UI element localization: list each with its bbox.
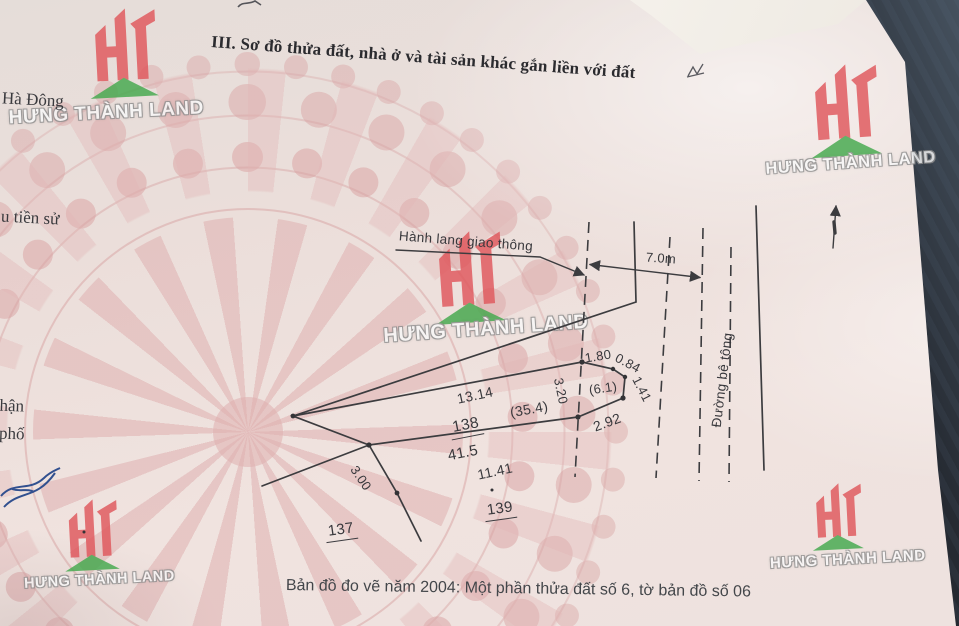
document-photo: HƯNG THÀNH LAND HƯNG THÀNH LAND HƯNG THÀ… bbox=[0, 0, 959, 626]
watermark-top-left: HƯNG THÀNH LAND bbox=[59, 0, 204, 127]
margin-fragment-line4: phố bbox=[0, 424, 25, 445]
watermark-bottom-right: HƯNG THÀNH LAND bbox=[766, 474, 926, 572]
margin-fragment-line3: nhận bbox=[0, 395, 24, 416]
hung-thanh-land-logo-icon bbox=[800, 56, 887, 161]
road-width-label: 7.0m bbox=[645, 249, 676, 266]
hung-thanh-land-logo-icon bbox=[806, 477, 868, 553]
watermark-bottom-left: HƯNG THÀNH LAND bbox=[20, 490, 176, 592]
hung-thanh-land-logo-icon bbox=[81, 0, 164, 101]
margin-fragment-line2: u tiền sử bbox=[1, 206, 60, 229]
margin-fragment-district: Hà Đông bbox=[2, 88, 65, 111]
watermark-top-right: HƯNG THÀNH LAND bbox=[758, 52, 936, 179]
hung-thanh-land-logo-icon bbox=[58, 493, 124, 574]
